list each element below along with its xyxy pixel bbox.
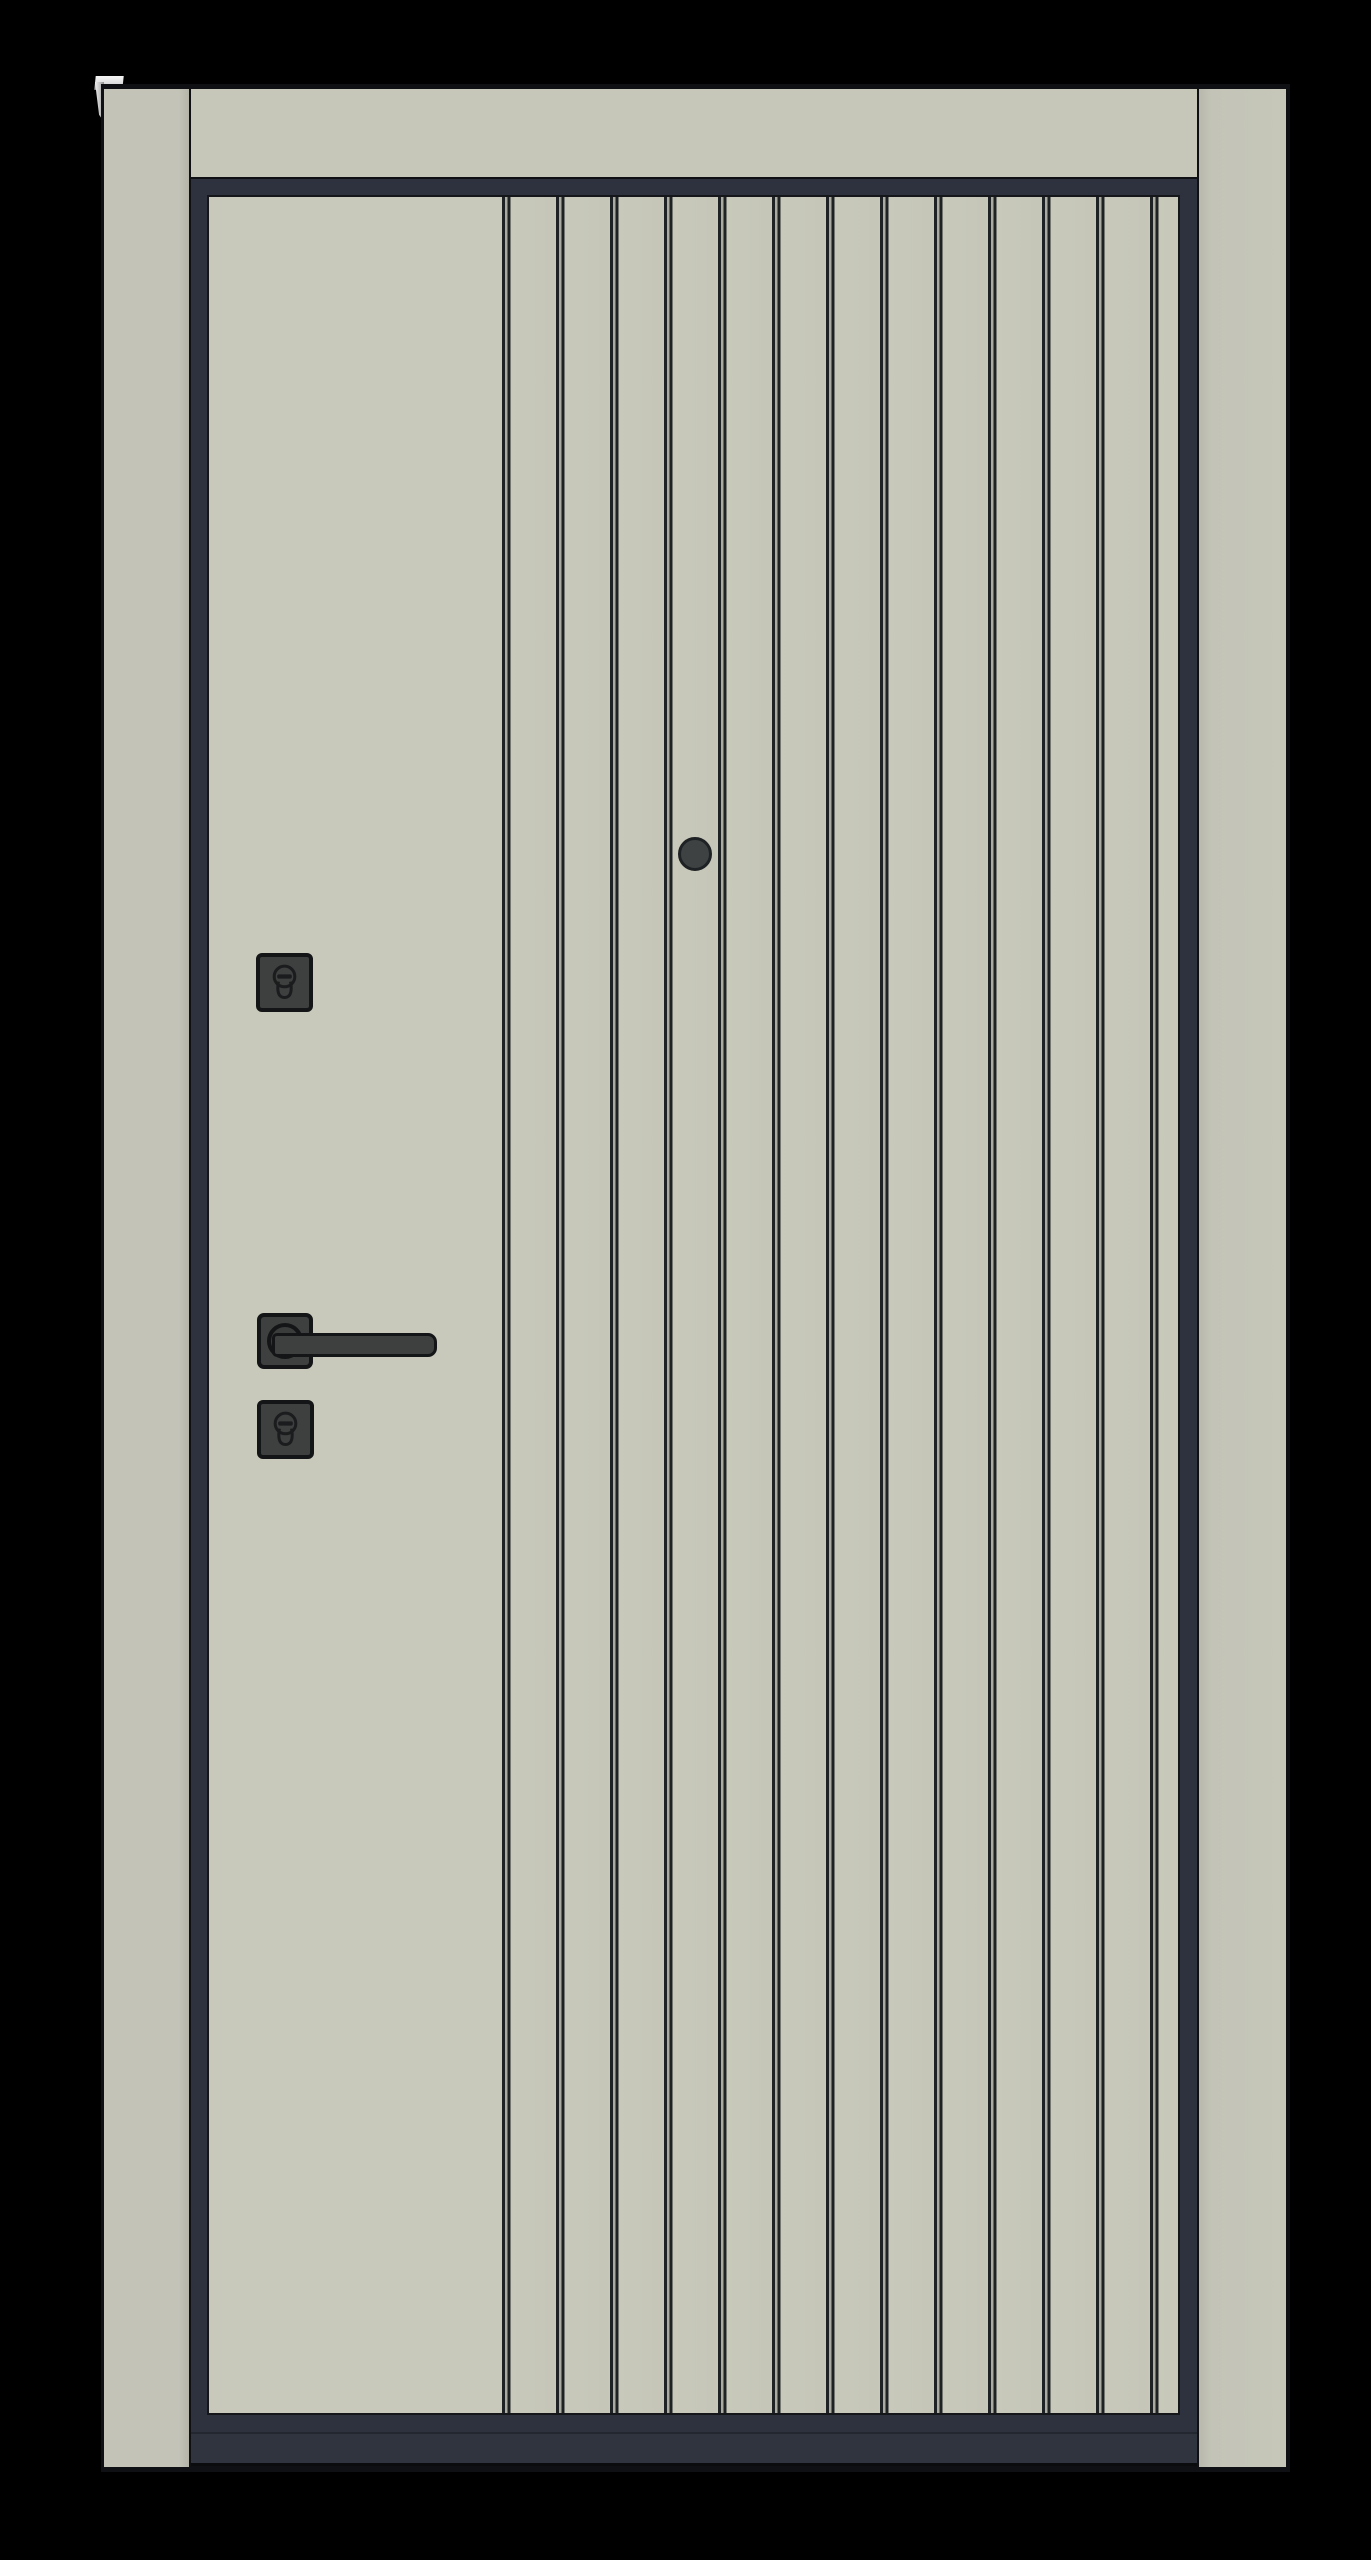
frame-right-jamb xyxy=(1199,89,1286,2467)
door-threshold xyxy=(191,2432,1197,2466)
handle-lever xyxy=(272,1333,437,1357)
frame-left-jamb xyxy=(104,89,189,2467)
door-render-stage xyxy=(0,0,1371,2560)
lower-lock-escutcheon xyxy=(257,1400,314,1459)
upper-lock-escutcheon xyxy=(256,953,313,1012)
keyhole-icon xyxy=(260,957,309,1008)
door-leaf-flat-panel xyxy=(209,197,502,2413)
keyhole-icon xyxy=(261,1404,310,1455)
door-leaf-grooved-panel xyxy=(502,197,1178,2413)
peephole-viewer xyxy=(678,837,712,871)
frame-header xyxy=(191,89,1197,177)
